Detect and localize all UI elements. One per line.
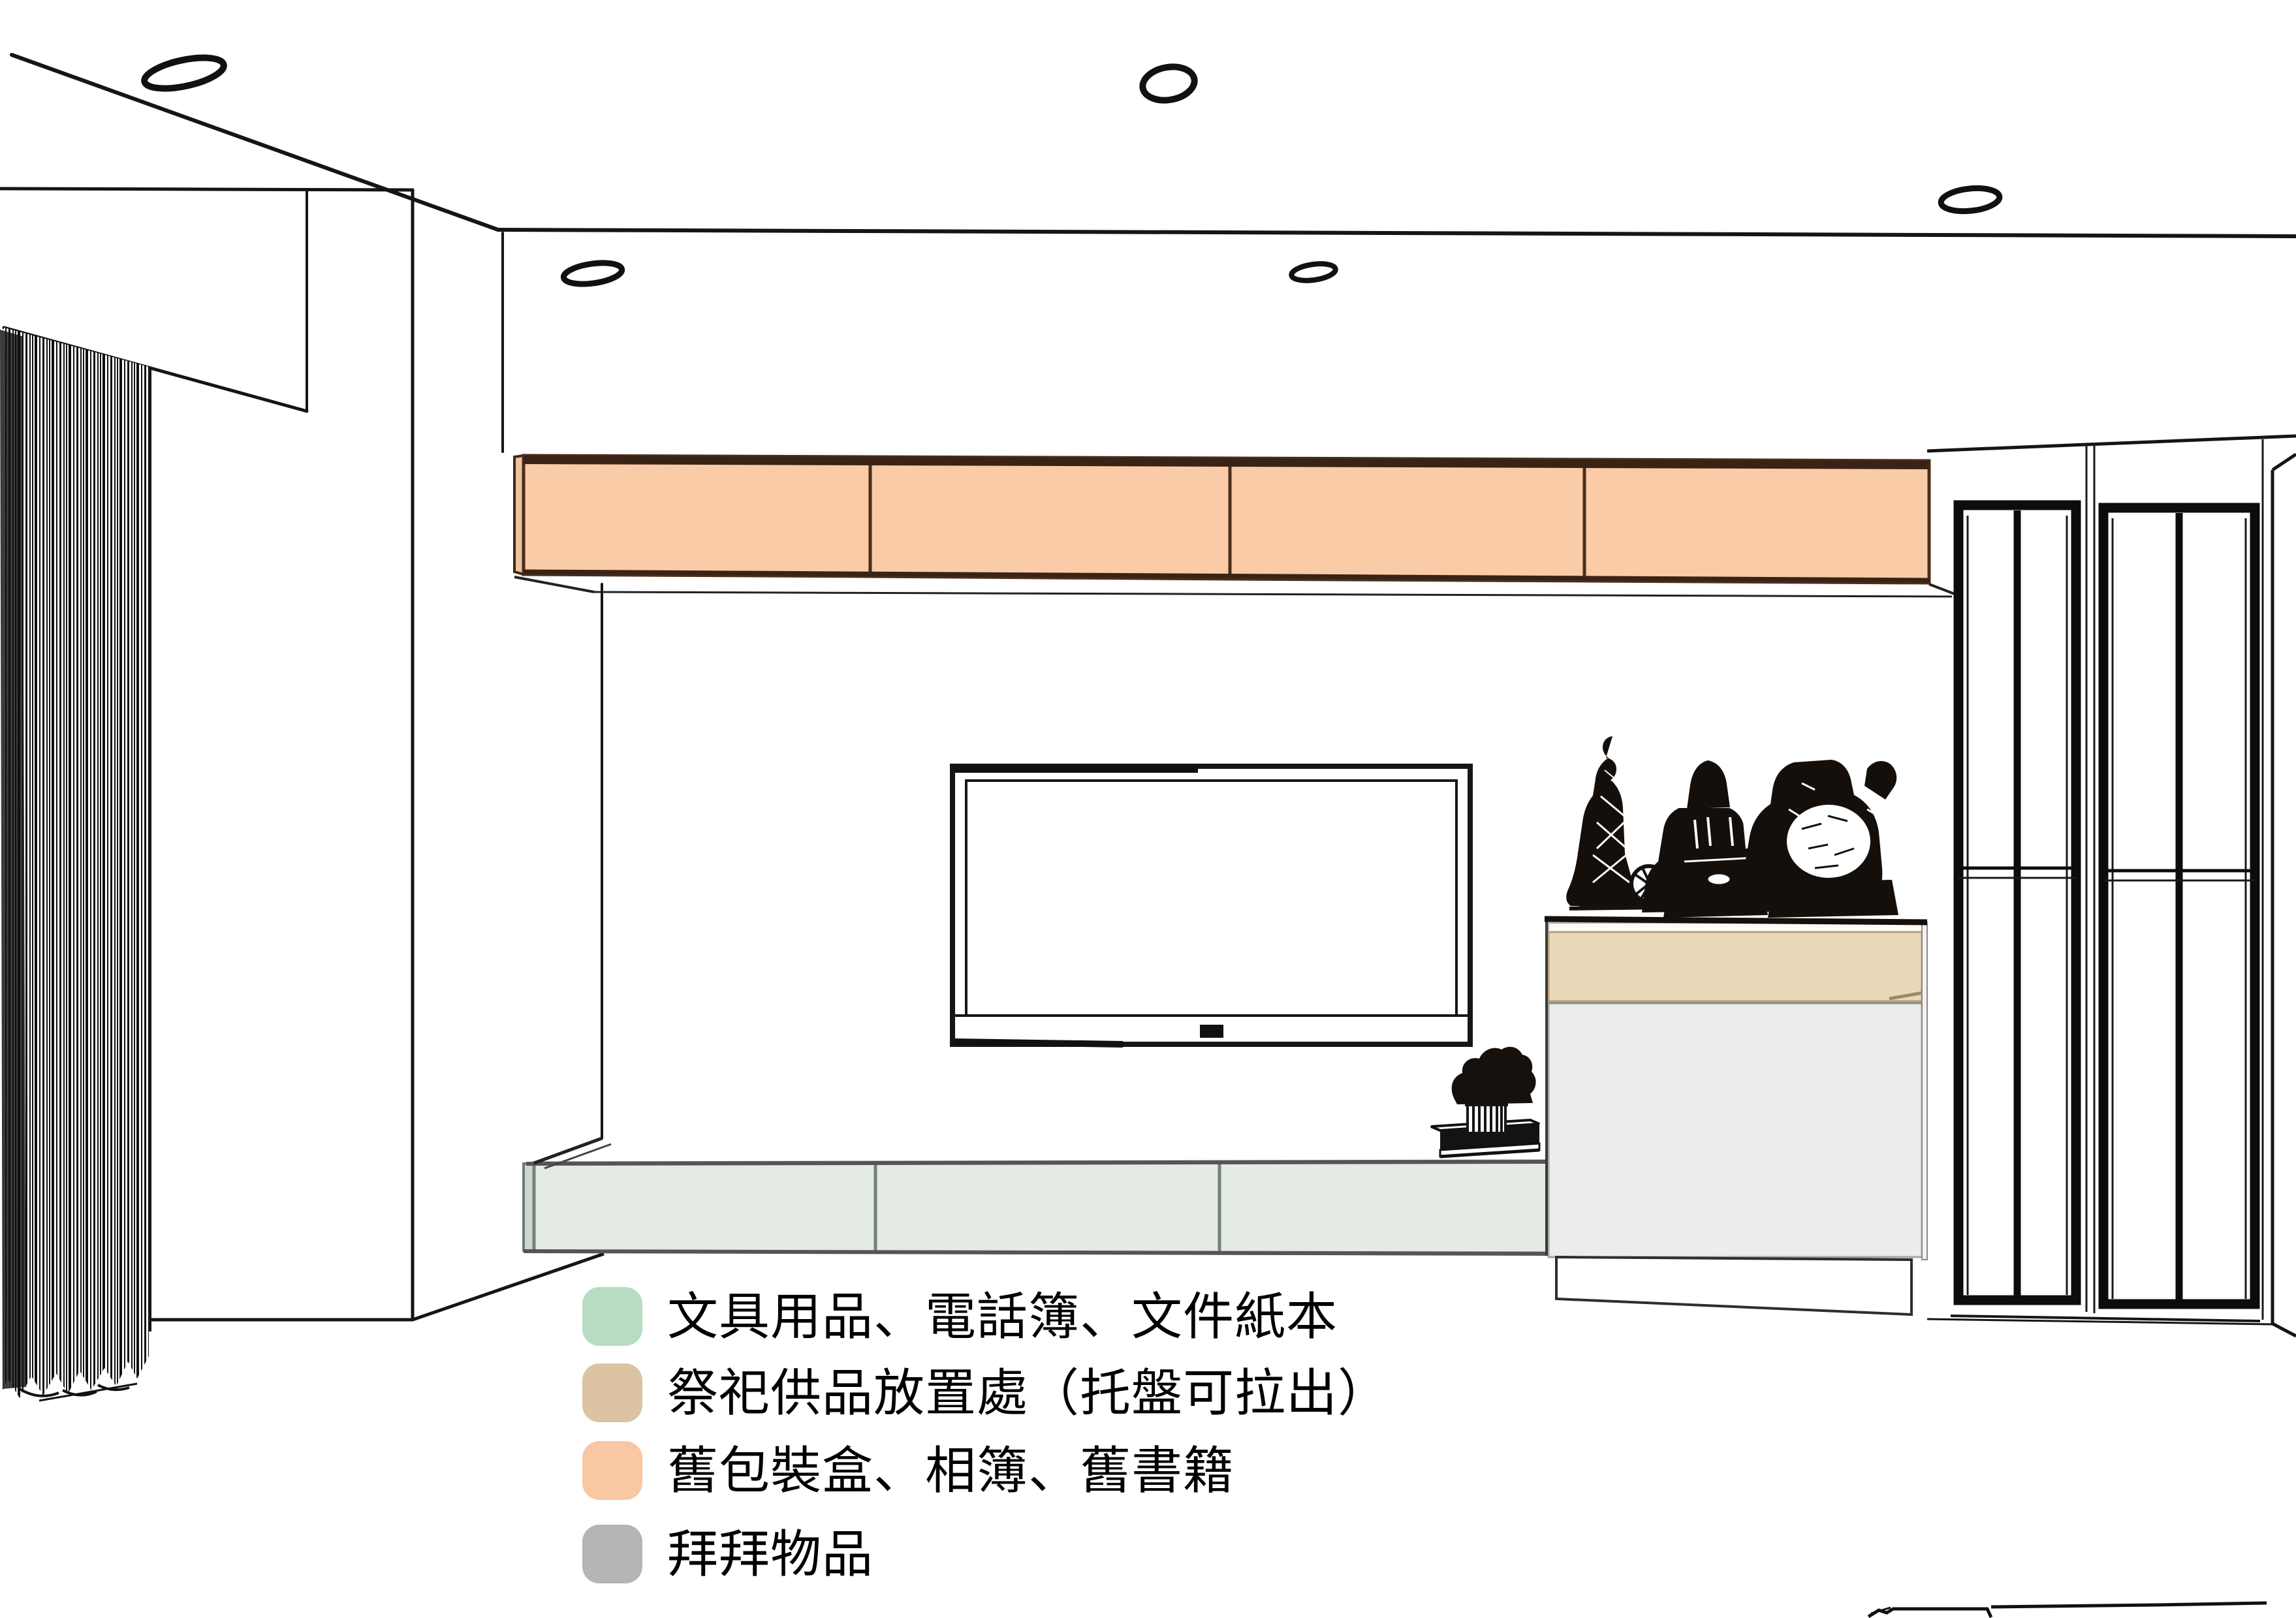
legend-label-peach: 舊包裝盒、相簿、舊書籍 bbox=[667, 1445, 1234, 1496]
legend-label-green: 文具用品、電話簿、文件紙本 bbox=[667, 1291, 1338, 1342]
foreground-furniture-edge bbox=[1868, 1603, 2267, 1617]
ceiling-lines bbox=[0, 55, 2296, 1320]
tv-cabinet-bottom-edge bbox=[524, 1251, 1547, 1254]
buddha-statues bbox=[1566, 736, 1898, 918]
tv-cabinet-door-3 bbox=[1219, 1161, 1547, 1253]
tv-cabinet bbox=[524, 1138, 1547, 1254]
floor-line-diagonal bbox=[413, 1254, 604, 1320]
ceiling-corner-diagonal bbox=[12, 55, 498, 230]
legend-swatch-tan bbox=[582, 1363, 642, 1422]
legend-label-gray: 拜拜物品 bbox=[667, 1529, 873, 1579]
downlight-icon bbox=[1291, 261, 1337, 283]
legend-label-tan: 祭祀供品放置處（托盤可拉出） bbox=[667, 1367, 1389, 1418]
floor-lines-left bbox=[150, 1254, 604, 1320]
plant-and-books bbox=[1431, 1047, 1539, 1157]
plant-foliage bbox=[1452, 1047, 1536, 1104]
elevation-drawing: 文具用品、電話簿、文件紙本 祭祀供品放置處（托盤可拉出） 舊包裝盒、相簿、舊書籍… bbox=[0, 0, 2296, 1618]
legend-swatch-gray bbox=[582, 1525, 642, 1583]
curtain-crumple bbox=[20, 1384, 137, 1401]
legend-item-green: 文具用品、電話簿、文件紙本 bbox=[582, 1287, 1338, 1346]
offering-bowl bbox=[1707, 873, 1731, 885]
upper-cabinet bbox=[514, 456, 1972, 600]
tv bbox=[952, 766, 1470, 1044]
right-wall-top-return bbox=[2272, 454, 2296, 470]
right-wall-floor-return bbox=[2272, 1324, 2296, 1336]
display-cabinet-left bbox=[1958, 505, 2076, 1300]
upper-cabinet-door-1 bbox=[524, 456, 870, 576]
tv-screen bbox=[966, 781, 1456, 1016]
upper-cabinet-door-4 bbox=[1584, 459, 1929, 583]
upper-cabinet-door-2 bbox=[870, 457, 1230, 579]
altar-base bbox=[1556, 1257, 1911, 1315]
upper-cabinet-door-3 bbox=[1230, 458, 1584, 581]
downlights bbox=[142, 52, 2000, 288]
downlight-icon bbox=[562, 260, 623, 287]
legend-item-tan: 祭祀供品放置處（托盤可拉出） bbox=[582, 1363, 1389, 1422]
tv-logo bbox=[1200, 1025, 1223, 1038]
display-cabinet-top-edge bbox=[1927, 436, 2296, 451]
altar-side-sliver bbox=[1922, 923, 1927, 1260]
altar-top-edge bbox=[1545, 919, 1927, 922]
legend-item-gray: 拜拜物品 bbox=[582, 1525, 873, 1583]
curtain bbox=[0, 328, 150, 1401]
legend-item-peach: 舊包裝盒、相簿、舊書籍 bbox=[582, 1441, 1234, 1500]
left-wall-top-edge bbox=[0, 189, 413, 190]
worship-cabinet-body bbox=[1549, 1003, 1922, 1257]
downlight-icon bbox=[1140, 63, 1197, 104]
statue-budai bbox=[1744, 760, 1898, 918]
tv-cabinet-door-1 bbox=[534, 1162, 875, 1252]
downlight-icon bbox=[1940, 185, 2000, 213]
altar-cabinet bbox=[1545, 919, 1927, 1315]
display-cabinet-right bbox=[2103, 508, 2255, 1304]
tv-cabinet-top-edge bbox=[526, 1162, 1547, 1164]
legend-swatch-green bbox=[582, 1287, 642, 1346]
display-cabinets bbox=[1927, 436, 2296, 1336]
downlight-icon bbox=[142, 52, 227, 95]
statue-raised-arm bbox=[1864, 761, 1896, 800]
soffit-bottom-edge bbox=[498, 230, 2296, 236]
tv-cabinet-door-2 bbox=[875, 1162, 1219, 1252]
legend-swatch-peach bbox=[582, 1441, 642, 1500]
curtain-edge-shade bbox=[0, 330, 26, 1389]
tv-frame-highlight-bottom bbox=[954, 1042, 1123, 1044]
offering-tray-band bbox=[1549, 932, 1922, 1001]
